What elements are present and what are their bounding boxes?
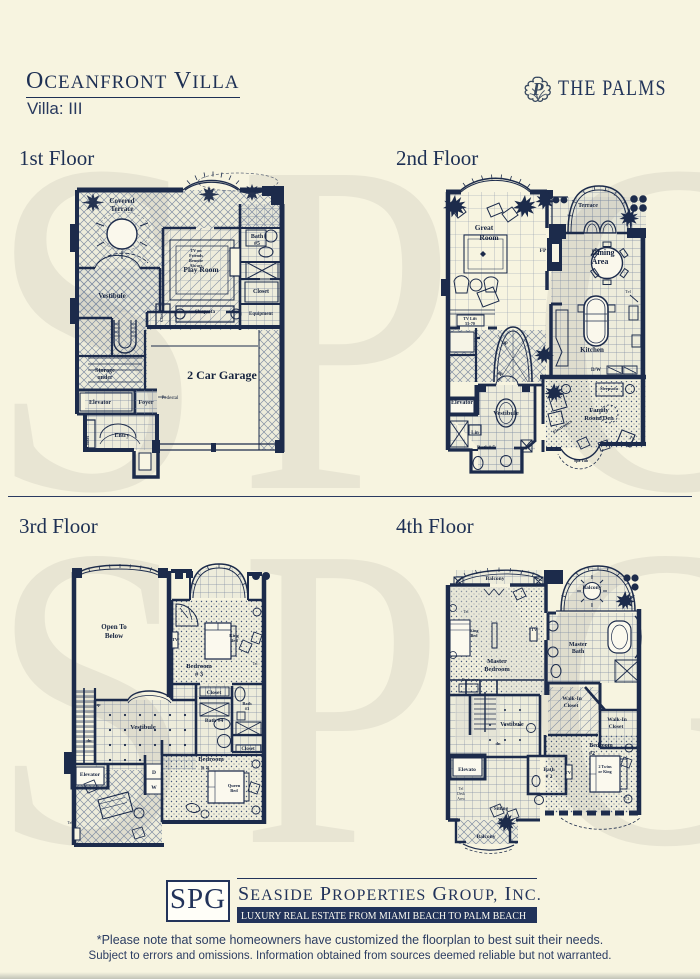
svg-text:Spa Tub: Spa Tub [574, 458, 589, 463]
svg-text:Area: Area [592, 257, 609, 266]
svg-text:Dining: Dining [591, 248, 614, 257]
svg-text:TV: TV [565, 770, 572, 775]
svg-text:FP: FP [540, 248, 547, 254]
svg-text:Storage: Storage [95, 368, 115, 374]
svg-text:Walk-In: Walk-In [607, 717, 627, 723]
svg-text:Bath: Bath [251, 234, 264, 240]
svg-text:Bath# 5: Bath# 5 [477, 445, 495, 451]
svg-text:dn: dn [495, 741, 501, 746]
svg-text:Master: Master [487, 658, 507, 665]
svg-text:Bedroom: Bedroom [484, 666, 510, 673]
svg-text:under: under [97, 375, 113, 381]
svg-text:Walk-In: Walk-In [562, 696, 582, 702]
svg-text:or King: or King [598, 769, 611, 774]
svg-text:Bath: Bath [572, 649, 585, 655]
svg-text:Elevator: Elevator [89, 400, 111, 406]
svg-text:D: D [152, 770, 156, 776]
svg-text:Bed: Bed [230, 638, 238, 643]
svg-text:Below: Below [105, 632, 124, 640]
svg-text:#5: #5 [254, 241, 260, 247]
svg-text:Vestibule: Vestibule [130, 724, 156, 731]
svg-text:Covered: Covered [109, 197, 134, 205]
svg-text:#3: #3 [245, 706, 250, 711]
svg-text:Tel: Tel [463, 609, 469, 614]
svg-text:TV: TV [172, 637, 179, 642]
svg-text:W: W [151, 785, 157, 791]
svg-text:Entry: Entry [115, 433, 130, 439]
svg-text:Open To: Open To [101, 623, 127, 631]
svg-text:Always: Always [189, 263, 202, 268]
svg-text:Closet: Closet [253, 289, 269, 295]
svg-text:Terrace: Terrace [578, 203, 598, 209]
svg-text:2 Car Garage: 2 Car Garage [187, 368, 257, 382]
svg-text:TCI: TCI [623, 797, 630, 801]
svg-text:Closet: Closet [207, 690, 222, 696]
svg-text:55-70: 55-70 [465, 321, 475, 326]
svg-text:Room/Den: Room/Den [584, 415, 614, 422]
svg-text:Tel: Tel [67, 820, 73, 825]
svg-text:Foyer: Foyer [139, 400, 154, 406]
svg-text:D/W: D/W [591, 368, 601, 373]
svg-text:Bedroom: Bedroom [589, 743, 613, 749]
svg-text:Elevator: Elevator [451, 400, 473, 406]
svg-text:Balcony: Balcony [477, 834, 496, 840]
svg-text:up: up [95, 702, 101, 707]
svg-text:Balcony: Balcony [486, 576, 505, 582]
svg-text:Closet: Closet [609, 724, 624, 730]
svg-text:dn: dn [86, 738, 92, 743]
svg-text:Equipment: Equipment [249, 312, 273, 317]
svg-text:Closet: Closet [564, 703, 579, 709]
svg-text:Terrace: Terrace [110, 205, 133, 213]
svg-text:Closet: Closet [159, 310, 164, 322]
svg-text:Vestibule: Vestibule [98, 292, 125, 300]
svg-text:Sleepsofa: Sleepsofa [600, 386, 619, 391]
svg-text:Bath #4: Bath #4 [205, 718, 223, 724]
svg-text:Lin: Lin [471, 431, 479, 436]
svg-text:Master: Master [569, 642, 588, 648]
svg-text:TV: TV [531, 627, 538, 632]
svg-text:Kitchen: Kitchen [580, 346, 604, 354]
svg-text:Area: Area [457, 797, 465, 801]
svg-text:Vestibule: Vestibule [500, 722, 524, 728]
svg-text:Bedroom: Bedroom [186, 663, 212, 670]
svg-text:Elevato: Elevato [458, 767, 476, 773]
svg-text:Bath: Bath [543, 767, 554, 773]
svg-text:Great: Great [475, 223, 494, 232]
svg-text:Sitting: Sitting [494, 807, 509, 812]
svg-text:Desk: Desk [457, 792, 465, 796]
svg-text:Desk area: Desk area [462, 677, 479, 682]
svg-text:Family: Family [589, 407, 609, 414]
svg-text:Tel: Tel [252, 661, 258, 666]
svg-text:# 4: # 4 [201, 765, 210, 772]
svg-text:Closet: Closet [241, 747, 255, 752]
svg-text:Balcony: Balcony [583, 585, 602, 591]
svg-text:Tel: Tel [625, 289, 631, 294]
svg-text:# 2: # 2 [546, 774, 553, 780]
svg-text:Elevator: Elevator [80, 772, 101, 778]
svg-text:P: P [532, 79, 545, 99]
svg-text:up: up [502, 341, 508, 346]
svg-text:Vestibule: Vestibule [493, 410, 519, 417]
svg-text:Bed: Bed [471, 633, 479, 638]
svg-text:Bedroom: Bedroom [198, 756, 224, 763]
svg-text:Sleepsofa: Sleepsofa [195, 310, 216, 315]
svg-text:Closet: Closet [85, 436, 90, 448]
svg-text:#2: #2 [589, 751, 595, 757]
svg-text:# 3: # 3 [195, 671, 204, 678]
svg-text:Tel: Tel [459, 787, 464, 791]
svg-text:Bed: Bed [230, 788, 238, 793]
svg-text:4p: 4p [497, 372, 503, 377]
svg-text:Room: Room [479, 233, 499, 242]
